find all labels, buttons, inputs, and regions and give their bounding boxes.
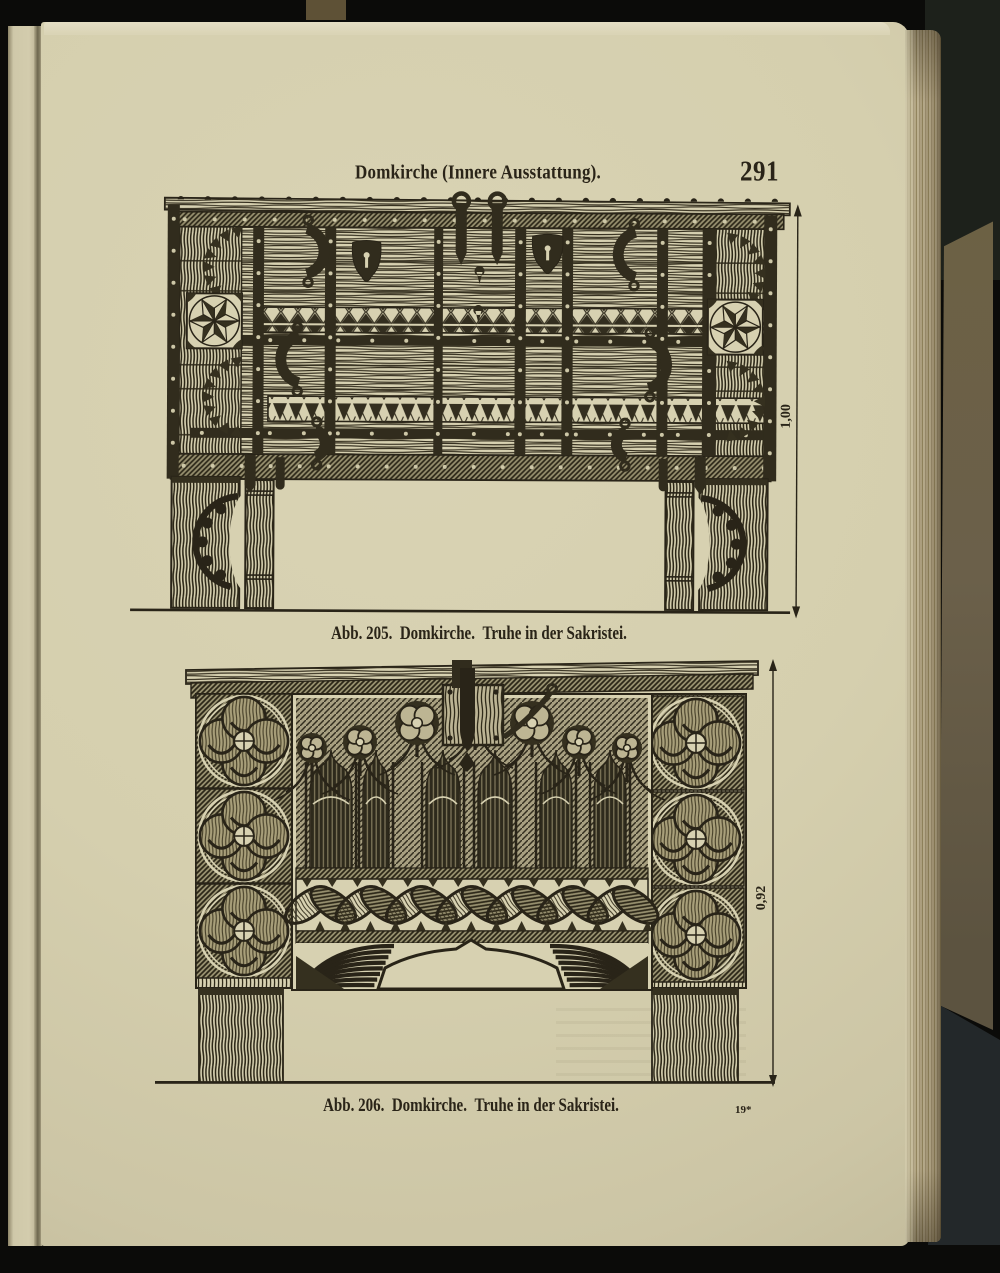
svg-text:0,92: 0,92 [754, 886, 769, 911]
svg-text:1,00: 1,00 [779, 404, 794, 429]
